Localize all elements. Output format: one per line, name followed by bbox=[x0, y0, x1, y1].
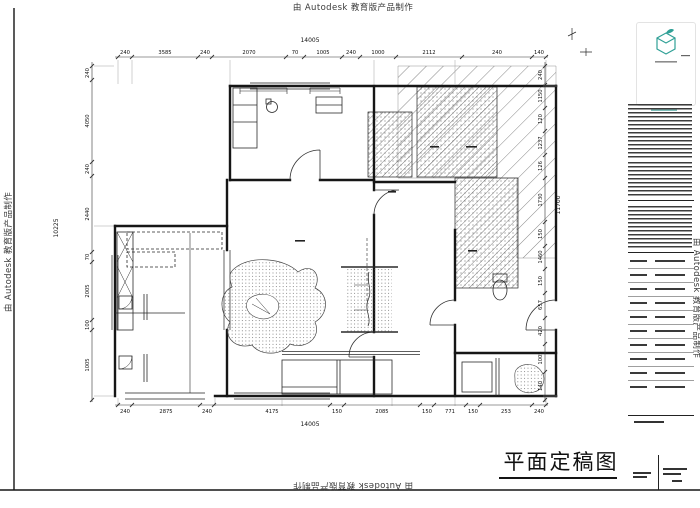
separator-line bbox=[628, 200, 694, 201]
scale-label-line bbox=[633, 472, 651, 474]
dim-label: 150 bbox=[468, 409, 478, 415]
dim-label: 240 bbox=[200, 50, 210, 56]
dim-label: 240 bbox=[492, 50, 502, 56]
dim-label: 2070 bbox=[242, 50, 255, 56]
dim-label: 771 bbox=[445, 409, 455, 415]
hatched-wall-blocks bbox=[368, 87, 518, 288]
notes-paragraph-3 bbox=[628, 206, 692, 248]
logo-subtext-line bbox=[655, 61, 677, 63]
dim-label: 150 bbox=[538, 276, 544, 286]
title-block-row bbox=[628, 325, 694, 339]
title-block-row bbox=[628, 311, 694, 325]
dim-label: 120 bbox=[538, 114, 544, 124]
dim-label: 140 bbox=[534, 50, 544, 56]
title-block-row bbox=[628, 367, 694, 381]
logo-icon bbox=[637, 25, 695, 69]
sheet-no-line bbox=[663, 473, 681, 475]
dim-label: 240 bbox=[85, 164, 91, 174]
dim-label: 1460 bbox=[538, 250, 544, 263]
notes-paragraph-2 bbox=[628, 162, 692, 196]
dim-label: 2112 bbox=[422, 50, 435, 56]
sheet-no-line bbox=[663, 468, 687, 470]
title-block-rows bbox=[628, 255, 694, 394]
sheet-border bbox=[0, 8, 700, 490]
watermark-bottom: 由 Autodesk 教育版产品制作 bbox=[278, 480, 428, 492]
dim-label: 4175 bbox=[265, 409, 278, 415]
dim-label: 3585 bbox=[158, 50, 171, 56]
title-block-row bbox=[628, 283, 694, 297]
dim-label: 1005 bbox=[85, 358, 91, 371]
watermark-top: 由 Autodesk 教育版产品制作 bbox=[278, 1, 428, 13]
scale-label-line bbox=[633, 476, 647, 478]
stamp-caption-line bbox=[634, 421, 664, 423]
dim-label: 2440 bbox=[85, 207, 91, 220]
title-block-row bbox=[628, 297, 694, 311]
dim-label: 240 bbox=[538, 70, 544, 80]
dim-label: 1730 bbox=[538, 193, 544, 206]
title-block-row bbox=[628, 255, 694, 269]
dim-total-left: 10225 bbox=[53, 218, 60, 237]
title-block-row bbox=[628, 269, 694, 283]
dim-label: 140 bbox=[538, 381, 544, 391]
dim-total-top: 14005 bbox=[300, 37, 319, 44]
dim-label: 240 bbox=[346, 50, 356, 56]
dim-label: 1237 bbox=[538, 136, 544, 149]
dim-label: 150 bbox=[538, 229, 544, 239]
dim-label: 100 bbox=[85, 320, 91, 330]
title-block-row bbox=[628, 381, 694, 394]
dim-label: 2875 bbox=[159, 409, 172, 415]
dim-label: 1150 bbox=[538, 89, 544, 102]
separator-line bbox=[628, 252, 694, 253]
dim-label: 253 bbox=[501, 409, 511, 415]
dim-total-right: 11700 bbox=[555, 195, 562, 214]
separator-line bbox=[628, 415, 694, 416]
sheet-no-line bbox=[672, 480, 682, 482]
dim-label: 2005 bbox=[85, 284, 91, 297]
dim-label: 4050 bbox=[85, 114, 91, 127]
notes-paragraph-1 bbox=[628, 104, 692, 158]
dim-label: 240 bbox=[120, 409, 130, 415]
title-block-row bbox=[628, 353, 694, 367]
company-logo-card: 固 家 bbox=[636, 22, 696, 106]
dim-label: 70 bbox=[85, 254, 91, 261]
drawing-title: 平面定稿图 bbox=[500, 446, 622, 476]
dim-total-bottom: 14005 bbox=[300, 421, 319, 428]
floor-plan-canvas: 240 3585 240 2070 70 1005 240 1000 2112 … bbox=[0, 0, 700, 504]
dim-label: 126 bbox=[538, 161, 544, 171]
dim-label: 420 bbox=[538, 326, 544, 336]
dim-label: 150 bbox=[332, 409, 342, 415]
dim-label: 240 bbox=[120, 50, 130, 56]
watermark-left: 由 Autodesk 教育版产品制作 bbox=[2, 177, 14, 327]
dim-label: 240 bbox=[85, 68, 91, 78]
dim-label: 150 bbox=[422, 409, 432, 415]
drawing-sheet: 由 Autodesk 教育版产品制作 由 Autodesk 教育版产品制作 由 … bbox=[0, 0, 700, 504]
title-block-row bbox=[628, 339, 694, 353]
dim-label: 240 bbox=[202, 409, 212, 415]
dim-label: 1000 bbox=[371, 50, 384, 56]
drawing-title-underline bbox=[499, 477, 617, 479]
dim-label: 240 bbox=[534, 409, 544, 415]
dim-label: 657 bbox=[538, 300, 544, 310]
dim-label: 2085 bbox=[375, 409, 388, 415]
dim-label: 1005 bbox=[538, 351, 544, 364]
title-strip-divider bbox=[658, 455, 659, 490]
dim-label: 1005 bbox=[316, 50, 329, 56]
dim-label: 70 bbox=[292, 50, 299, 56]
